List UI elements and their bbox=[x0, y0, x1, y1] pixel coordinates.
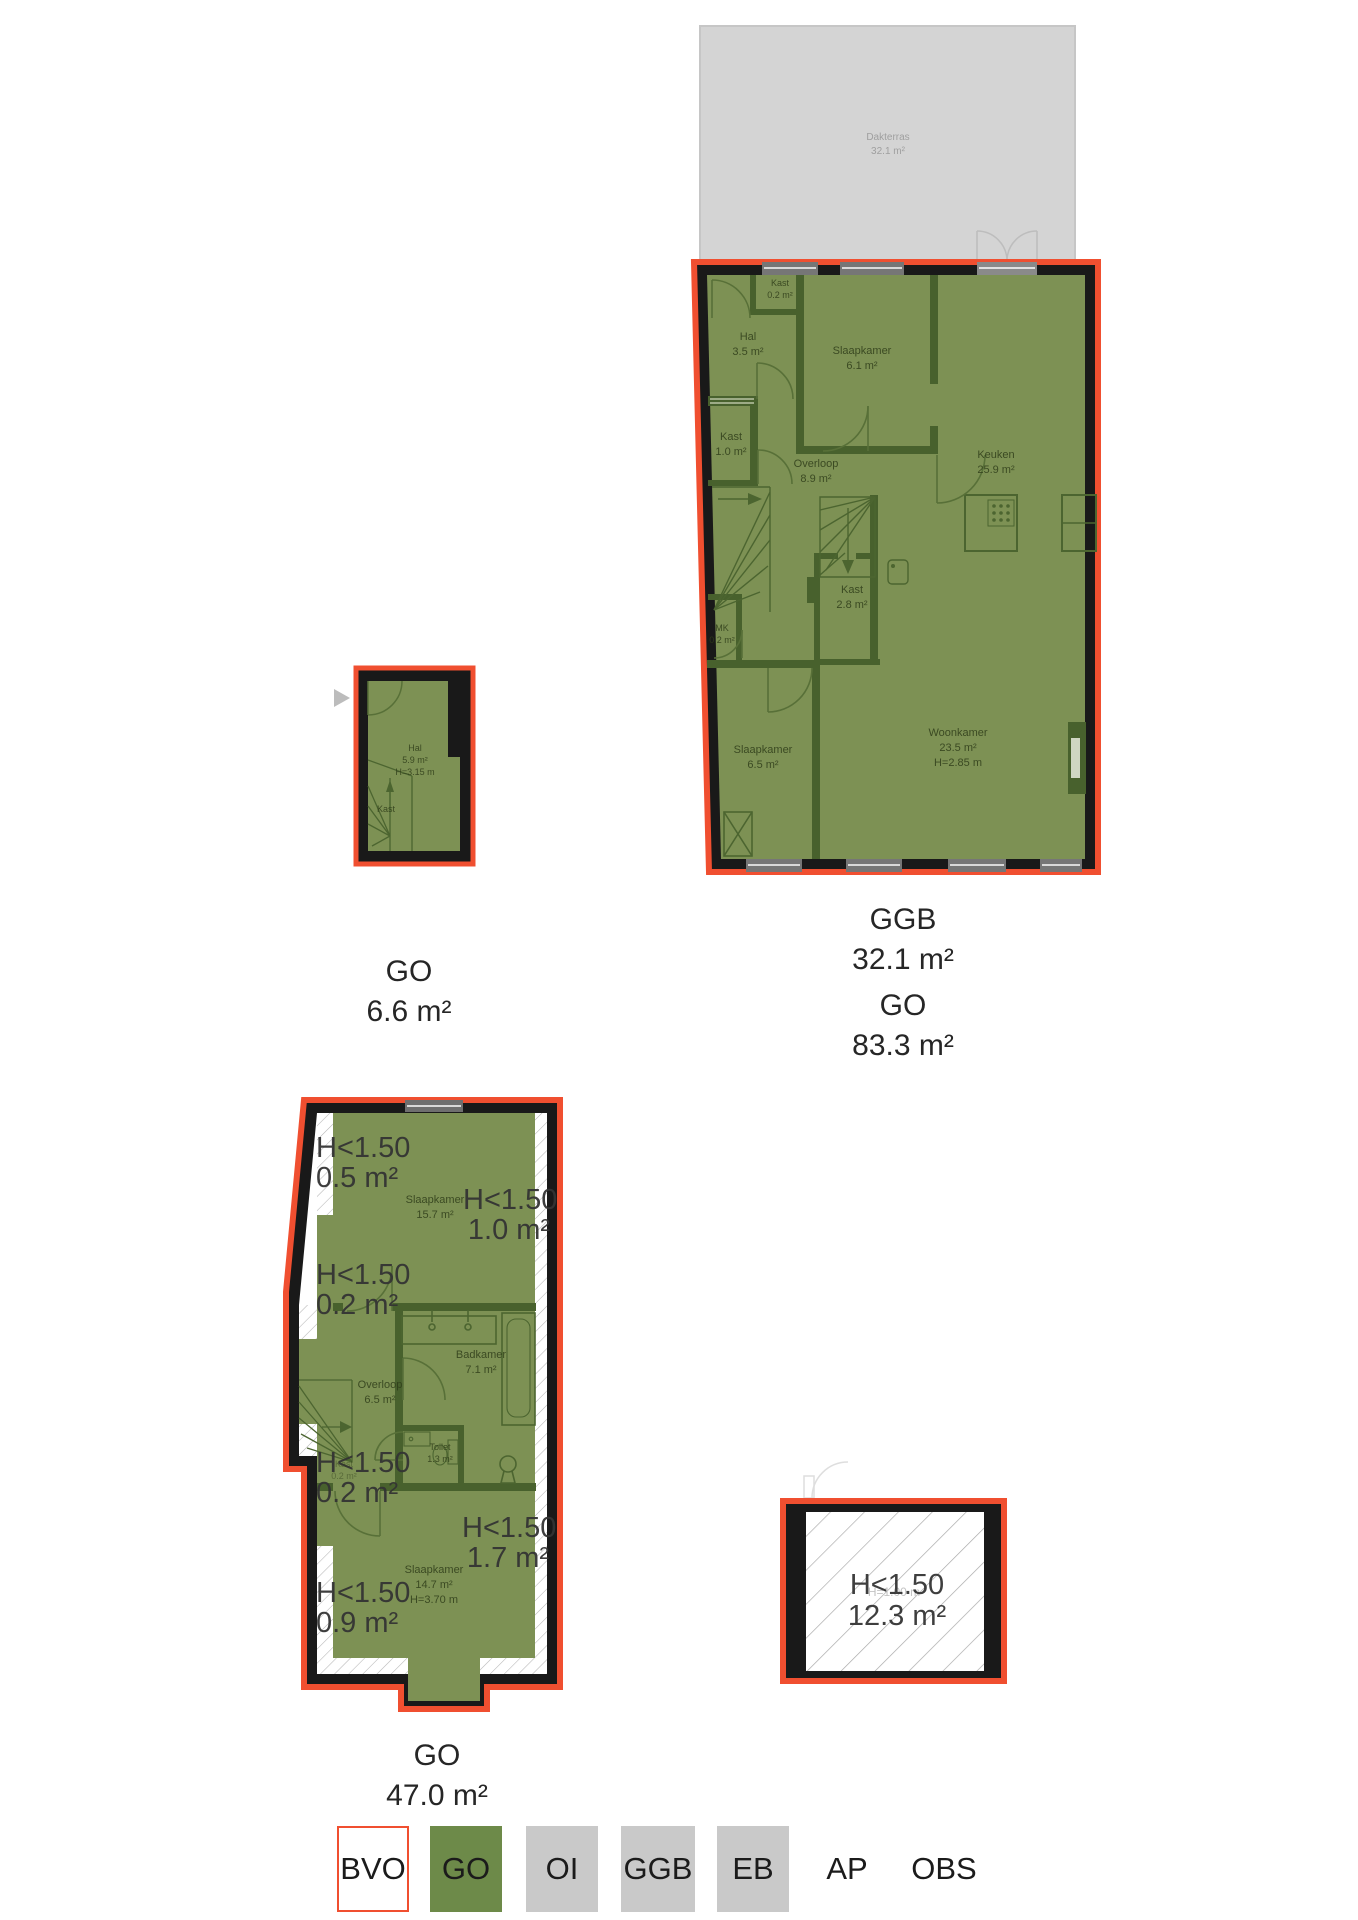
legend-label: AP bbox=[826, 1851, 867, 1887]
room-label: Woonkamer 23.5 m² H=2.85 m bbox=[928, 726, 987, 771]
legend-label: OI bbox=[546, 1851, 579, 1887]
room-label: Toilet 1.3 m² bbox=[427, 1441, 453, 1465]
room-label: Kast 0.2 m² bbox=[331, 1458, 357, 1482]
h150-annotation: H<1.50 1.0 m² bbox=[463, 1185, 555, 1245]
summary-upper: GGB 32.1 m² GO 83.3 m² bbox=[852, 900, 954, 1066]
room-label: MK 0.2 m² bbox=[709, 622, 735, 646]
room-label: Slaapkamer 6.5 m² bbox=[734, 743, 793, 773]
fireplace-niche-icon bbox=[1071, 738, 1080, 778]
legend-label: GO bbox=[442, 1851, 490, 1887]
legend-item-bvo: BVO bbox=[337, 1826, 409, 1912]
room-label: Hal 5.9 m² H=3.15 m bbox=[395, 742, 434, 778]
measurement-report-page: Kast 0.2 m² Hal 3.5 m² Slaapkamer 6.1 m²… bbox=[0, 0, 1358, 1920]
h150-annotation: H<1.50 0.9 m² bbox=[316, 1578, 410, 1638]
legend-item-eb: EB bbox=[717, 1826, 789, 1912]
room-label: Kast bbox=[377, 803, 395, 815]
legend-label: BVO bbox=[340, 1851, 405, 1887]
legend-label: OBS bbox=[911, 1851, 976, 1887]
legend-item-obs: OBS bbox=[904, 1826, 984, 1912]
legend-label: GGB bbox=[624, 1851, 693, 1887]
room-label: Overloop 6.5 m² bbox=[358, 1378, 403, 1408]
legend-label: EB bbox=[732, 1851, 773, 1887]
room-label: Kast 1.0 m² bbox=[715, 430, 746, 460]
room-label: Slaapkamer 6.1 m² bbox=[833, 344, 892, 374]
terrace-label: Dakterras 32.1 m² bbox=[866, 131, 909, 159]
room-label: Slaapkamer 14.7 m² H=3.70 m bbox=[405, 1563, 464, 1608]
legend-item-oi: OI bbox=[526, 1826, 598, 1912]
room-label: Hal 3.5 m² bbox=[732, 330, 763, 360]
room-label: Keuken 25.9 m² bbox=[977, 448, 1014, 478]
legend-item-ggb: GGB bbox=[621, 1826, 695, 1912]
ghost-door-icon bbox=[804, 1462, 848, 1498]
h150-annotation: H<1.50 1.7 m² bbox=[462, 1513, 554, 1573]
h150-annotation: H<1.50 0.2 m² bbox=[316, 1260, 410, 1320]
h150-annotation: H<1.50 12.3 m² bbox=[848, 1570, 946, 1632]
room-label: Overloop 8.9 m² bbox=[794, 457, 839, 487]
summary-entry: GO 6.6 m² bbox=[366, 952, 451, 1032]
room-label: Kast 2.8 m² bbox=[836, 583, 867, 613]
room-label: Kast 0.2 m² bbox=[767, 277, 793, 301]
room-label: Slaapkamer 15.7 m² bbox=[406, 1193, 465, 1223]
room-label: Badkamer 7.1 m² bbox=[456, 1348, 506, 1378]
h150-annotation: H<1.50 0.5 m² bbox=[316, 1133, 410, 1193]
h150-annotation: H<1.50 0.2 m² bbox=[316, 1448, 410, 1508]
entry-arrow-icon bbox=[334, 689, 350, 707]
summary-lower: GO 47.0 m² bbox=[386, 1736, 488, 1816]
legend-item-ap: AP bbox=[811, 1826, 883, 1912]
legend-item-go: GO bbox=[430, 1826, 502, 1912]
